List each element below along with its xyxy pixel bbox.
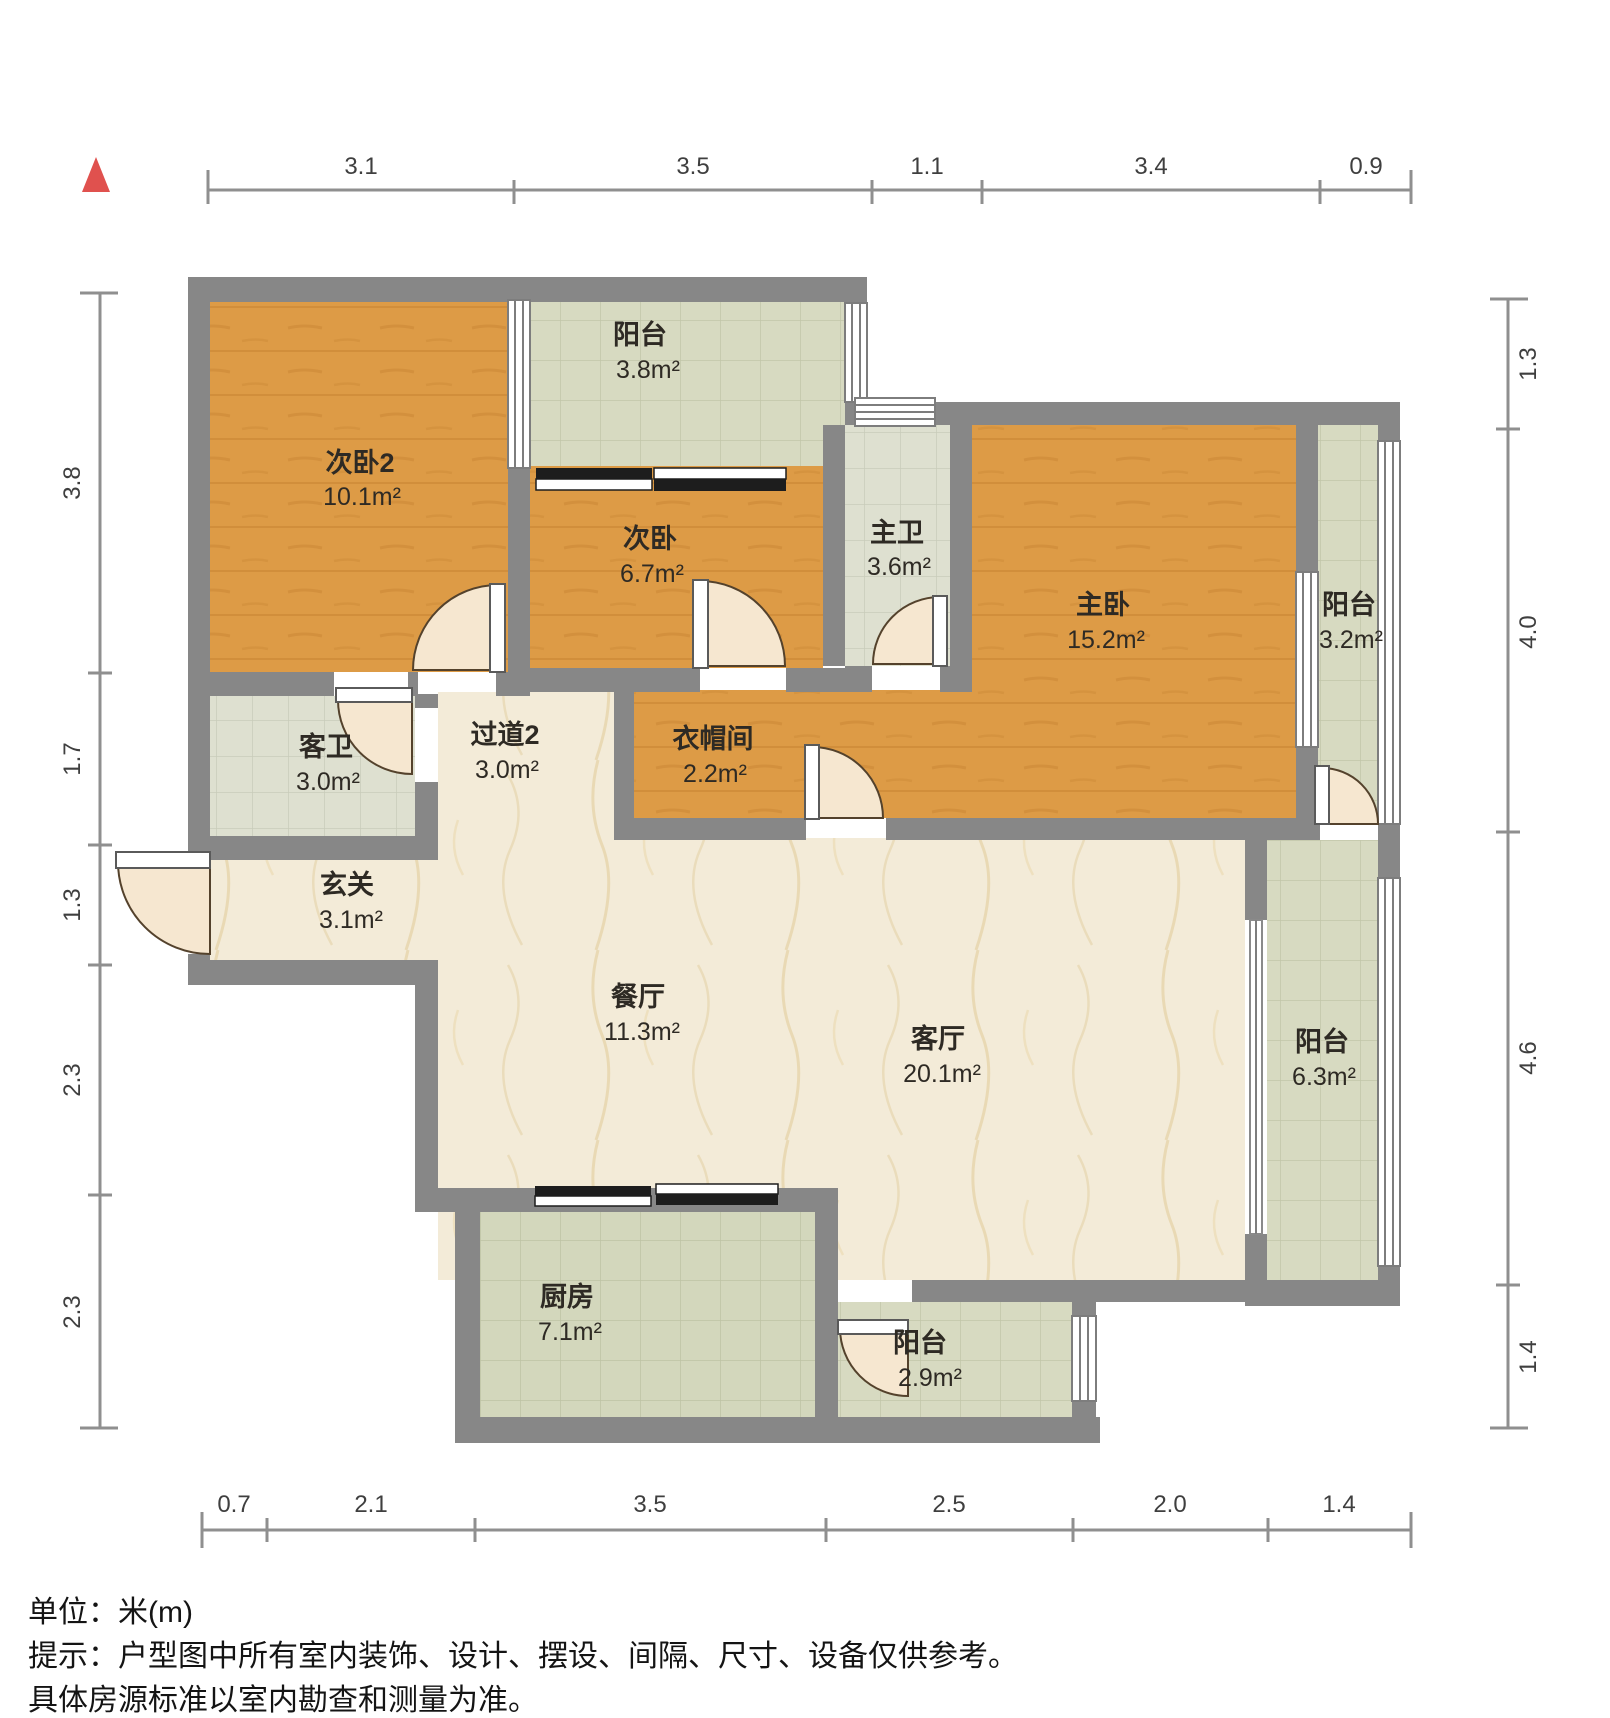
dim-right-4: 1.4 [1515,1340,1542,1373]
area-balcony-right-top: 3.2m² [1319,626,1383,654]
window-balcony-right-outer [1378,878,1400,1266]
area-bedroom: 6.7m² [620,560,684,588]
dim-left: 3.8 1.7 1.3 2.3 2.3 [59,293,118,1428]
label-master-bath: 主卫 [870,518,924,548]
dim-bottom-4: 2.5 [932,1491,965,1518]
dim-left-1: 3.8 [59,466,86,499]
hint-note-2: 具体房源标准以室内勘查和测量为准。 [28,1684,538,1717]
window-balcony-top-right [845,303,867,402]
area-kitchen: 7.1m² [538,1318,602,1346]
label-master-bedroom: 主卧 [1076,590,1130,620]
dim-top-4: 3.4 [1134,153,1167,180]
dim-right-3: 4.6 [1515,1041,1542,1074]
sliding-door-balcony-top [536,468,786,491]
label-cloakroom: 衣帽间 [673,723,754,754]
label-balcony-right-top: 阳台 [1322,589,1376,620]
label-kitchen: 厨房 [540,1282,594,1312]
floor-balcony-right-top [1318,425,1378,818]
dim-right-2: 4.0 [1515,615,1542,648]
label-guest-bath: 客卫 [299,731,353,762]
label-living: 客厅 [911,1023,965,1054]
dim-top-1: 3.1 [344,153,377,180]
area-guest-bath: 3.0m² [296,768,360,796]
label-hallway: 过道2 [470,719,539,750]
dim-bottom-6: 1.4 [1322,1491,1355,1518]
area-balcony-top: 3.8m² [616,356,680,384]
area-hallway: 3.0m² [475,756,539,784]
dim-top-3: 1.1 [910,153,943,180]
door-entrance [116,852,210,954]
dim-bottom-3: 3.5 [633,1491,666,1518]
floor-balcony-right [1267,840,1378,1280]
unit-note: 单位：米(m) [28,1596,193,1629]
area-entry: 3.1m² [319,906,383,934]
dim-bottom-5: 2.0 [1153,1491,1186,1518]
label-entry: 玄关 [320,869,374,900]
dim-right-1: 1.3 [1515,347,1542,380]
window-master-bath [855,398,935,426]
window-master-bedroom [1296,572,1318,747]
window-balcony-top-left [508,300,530,468]
window-balcony-bottom [1072,1316,1096,1401]
area-dining: 11.3m² [604,1018,680,1046]
dim-bottom-2: 2.1 [354,1491,387,1518]
hint-note-1: 提示：户型图中所有室内装饰、设计、摆设、间隔、尺寸、设备仅供参考。 [28,1640,1018,1673]
label-balcony-top: 阳台 [613,319,667,350]
area-balcony-bottom: 2.9m² [898,1364,962,1392]
floor-kitchen [480,1212,815,1417]
label-bedroom2: 次卧2 [325,448,394,478]
dim-right: 1.3 4.0 4.6 1.4 [1490,299,1542,1428]
area-living: 20.1m² [903,1060,981,1088]
label-balcony-bottom: 阳台 [893,1327,947,1358]
dim-bottom: 0.7 2.1 3.5 2.5 2.0 1.4 [202,1491,1411,1548]
floorplan-canvas: 次卧2 10.1m² 阳台 3.8m² 次卧 6.7m² 主卫 3.6m² 主卧… [0,0,1610,1718]
dim-bottom-1: 0.7 [217,1491,250,1518]
area-master-bath: 3.6m² [867,553,931,581]
label-bedroom: 次卧 [623,524,677,554]
dim-left-5: 2.3 [59,1295,86,1328]
sliding-door-kitchen [535,1184,778,1206]
area-master-bedroom: 15.2m² [1067,626,1145,654]
dim-top-5: 0.9 [1349,153,1382,180]
footnotes: 单位：米(m) 提示：户型图中所有室内装饰、设计、摆设、间隔、尺寸、设备仅供参考… [28,1596,1018,1717]
floor-balcony-top [530,302,845,466]
label-dining: 餐厅 [611,982,665,1012]
label-balcony-right: 阳台 [1295,1026,1349,1057]
area-balcony-right: 6.3m² [1292,1063,1356,1091]
north-arrow-icon [82,157,110,192]
dim-top-2: 3.5 [676,153,709,180]
area-bedroom2: 10.1m² [323,483,401,511]
floorplan-page: 次卧2 10.1m² 阳台 3.8m² 次卧 6.7m² 主卫 3.6m² 主卧… [0,0,1610,1718]
dim-left-2: 1.7 [59,742,86,775]
area-cloakroom: 2.2m² [683,760,747,788]
dim-top: 3.1 3.5 1.1 3.4 0.9 [208,153,1411,204]
dim-left-4: 2.3 [59,1063,86,1096]
floor-cloakroom-corridor [634,690,1296,818]
dim-left-3: 1.3 [59,888,86,921]
